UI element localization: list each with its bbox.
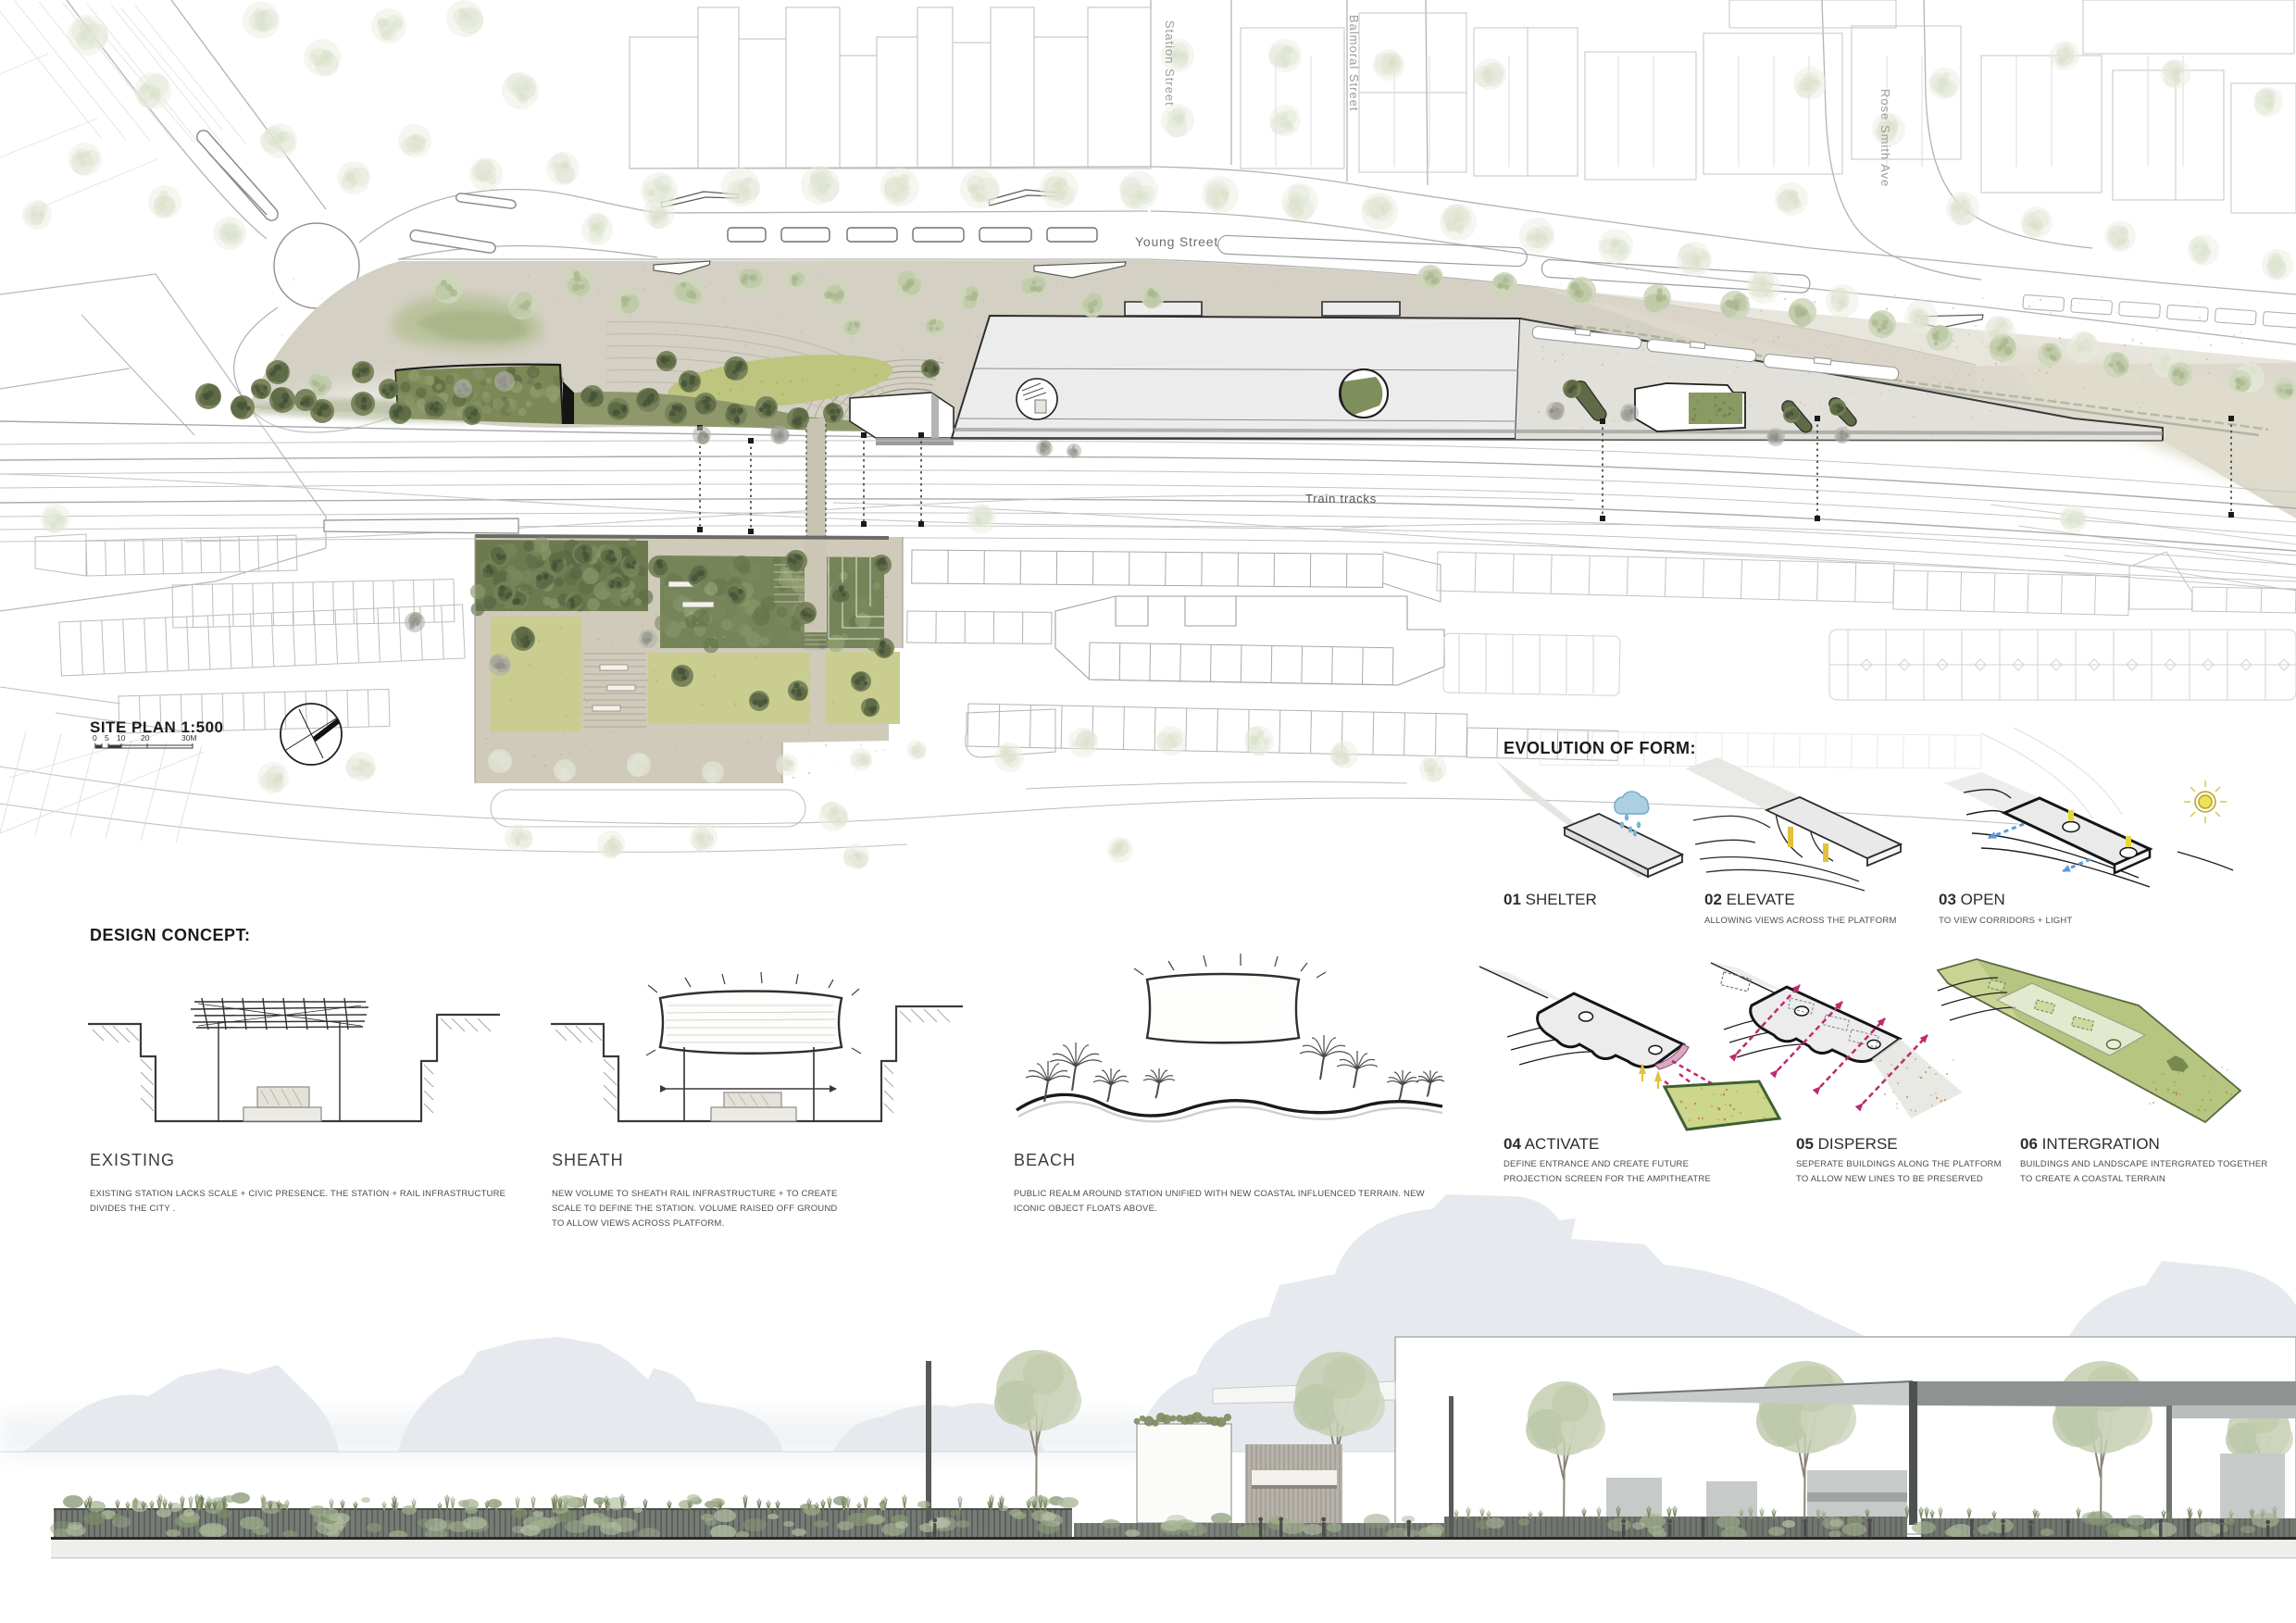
svg-text:Balmoral Street: Balmoral Street bbox=[1347, 15, 1361, 112]
svg-text:10: 10 bbox=[117, 733, 126, 743]
svg-text:5: 5 bbox=[105, 733, 109, 743]
svg-text:PUBLIC REALM AROUND STATION UN: PUBLIC REALM AROUND STATION UNIFIED WITH… bbox=[1014, 1189, 1425, 1199]
svg-text:0: 0 bbox=[93, 733, 97, 743]
svg-text:06 INTERGRATION: 06 INTERGRATION bbox=[2020, 1135, 2160, 1153]
svg-text:TO CREATE A COASTAL TERRAIN: TO CREATE A COASTAL TERRAIN bbox=[2020, 1174, 2165, 1184]
svg-text:03 OPEN: 03 OPEN bbox=[1939, 891, 2005, 908]
svg-text:BUILDINGS AND LANDSCAPE INTERG: BUILDINGS AND LANDSCAPE INTERGRATED TOGE… bbox=[2020, 1159, 2267, 1169]
svg-text:TO ALLOW NEW LINES TO BE PRESE: TO ALLOW NEW LINES TO BE PRESERVED bbox=[1796, 1174, 1983, 1184]
svg-text:SEPERATE BUILDINGS ALONG THE P: SEPERATE BUILDINGS ALONG THE PLATFORM bbox=[1796, 1159, 2002, 1169]
svg-text:Rose Smith Ave: Rose Smith Ave bbox=[1878, 89, 1892, 187]
svg-text:NEW VOLUME TO SHEATH RAIL INFR: NEW VOLUME TO SHEATH RAIL INFRASTRUCTURE… bbox=[552, 1189, 838, 1199]
svg-text:PROJECTION SCREEN FOR THE AMPI: PROJECTION SCREEN FOR THE AMPITHEATRE bbox=[1504, 1174, 1711, 1184]
svg-text:BEACH: BEACH bbox=[1014, 1151, 1076, 1169]
svg-text:TO VIEW CORRIDORS + LIGHT: TO VIEW CORRIDORS + LIGHT bbox=[1939, 916, 2072, 926]
svg-text:05 DISPERSE: 05 DISPERSE bbox=[1796, 1135, 1898, 1153]
svg-text:04 ACTIVATE: 04 ACTIVATE bbox=[1504, 1135, 1599, 1153]
svg-text:ICONIC OBJECT FLOATS ABOVE.: ICONIC OBJECT FLOATS ABOVE. bbox=[1014, 1204, 1157, 1214]
svg-text:TO ALLOW VIEWS ACROSS PLATFORM: TO ALLOW VIEWS ACROSS PLATFORM. bbox=[552, 1218, 724, 1229]
svg-text:02 ELEVATE: 02 ELEVATE bbox=[1704, 891, 1795, 908]
svg-text:SHEATH: SHEATH bbox=[552, 1151, 624, 1169]
svg-text:SITE PLAN 1:500: SITE PLAN 1:500 bbox=[90, 718, 224, 736]
svg-text:EXISTING STATION LACKS SCALE +: EXISTING STATION LACKS SCALE + CIVIC PRE… bbox=[90, 1189, 505, 1199]
svg-text:01 SHELTER: 01 SHELTER bbox=[1504, 891, 1597, 908]
svg-text:30M: 30M bbox=[181, 733, 197, 743]
svg-text:20: 20 bbox=[141, 733, 150, 743]
svg-text:DEFINE ENTRANCE AND CREATE FUT: DEFINE ENTRANCE AND CREATE FUTURE bbox=[1504, 1159, 1689, 1169]
svg-text:Train tracks: Train tracks bbox=[1305, 492, 1377, 506]
svg-text:Station Street: Station Street bbox=[1163, 20, 1177, 106]
svg-text:ALLOWING VIEWS ACROSS THE PLAT: ALLOWING VIEWS ACROSS THE PLATFORM bbox=[1704, 916, 1897, 926]
svg-text:DIVIDES THE CITY .: DIVIDES THE CITY . bbox=[90, 1204, 175, 1214]
svg-text:EVOLUTION OF FORM:: EVOLUTION OF FORM: bbox=[1504, 739, 1696, 757]
svg-text:Young Street: Young Street bbox=[1135, 234, 1218, 249]
svg-text:DESIGN CONCEPT:: DESIGN CONCEPT: bbox=[90, 926, 251, 944]
svg-text:EXISTING: EXISTING bbox=[90, 1151, 175, 1169]
svg-text:SCALE TO DEFINE THE STATION.: SCALE TO DEFINE THE STATION. VOLUME RAIS… bbox=[552, 1204, 838, 1214]
